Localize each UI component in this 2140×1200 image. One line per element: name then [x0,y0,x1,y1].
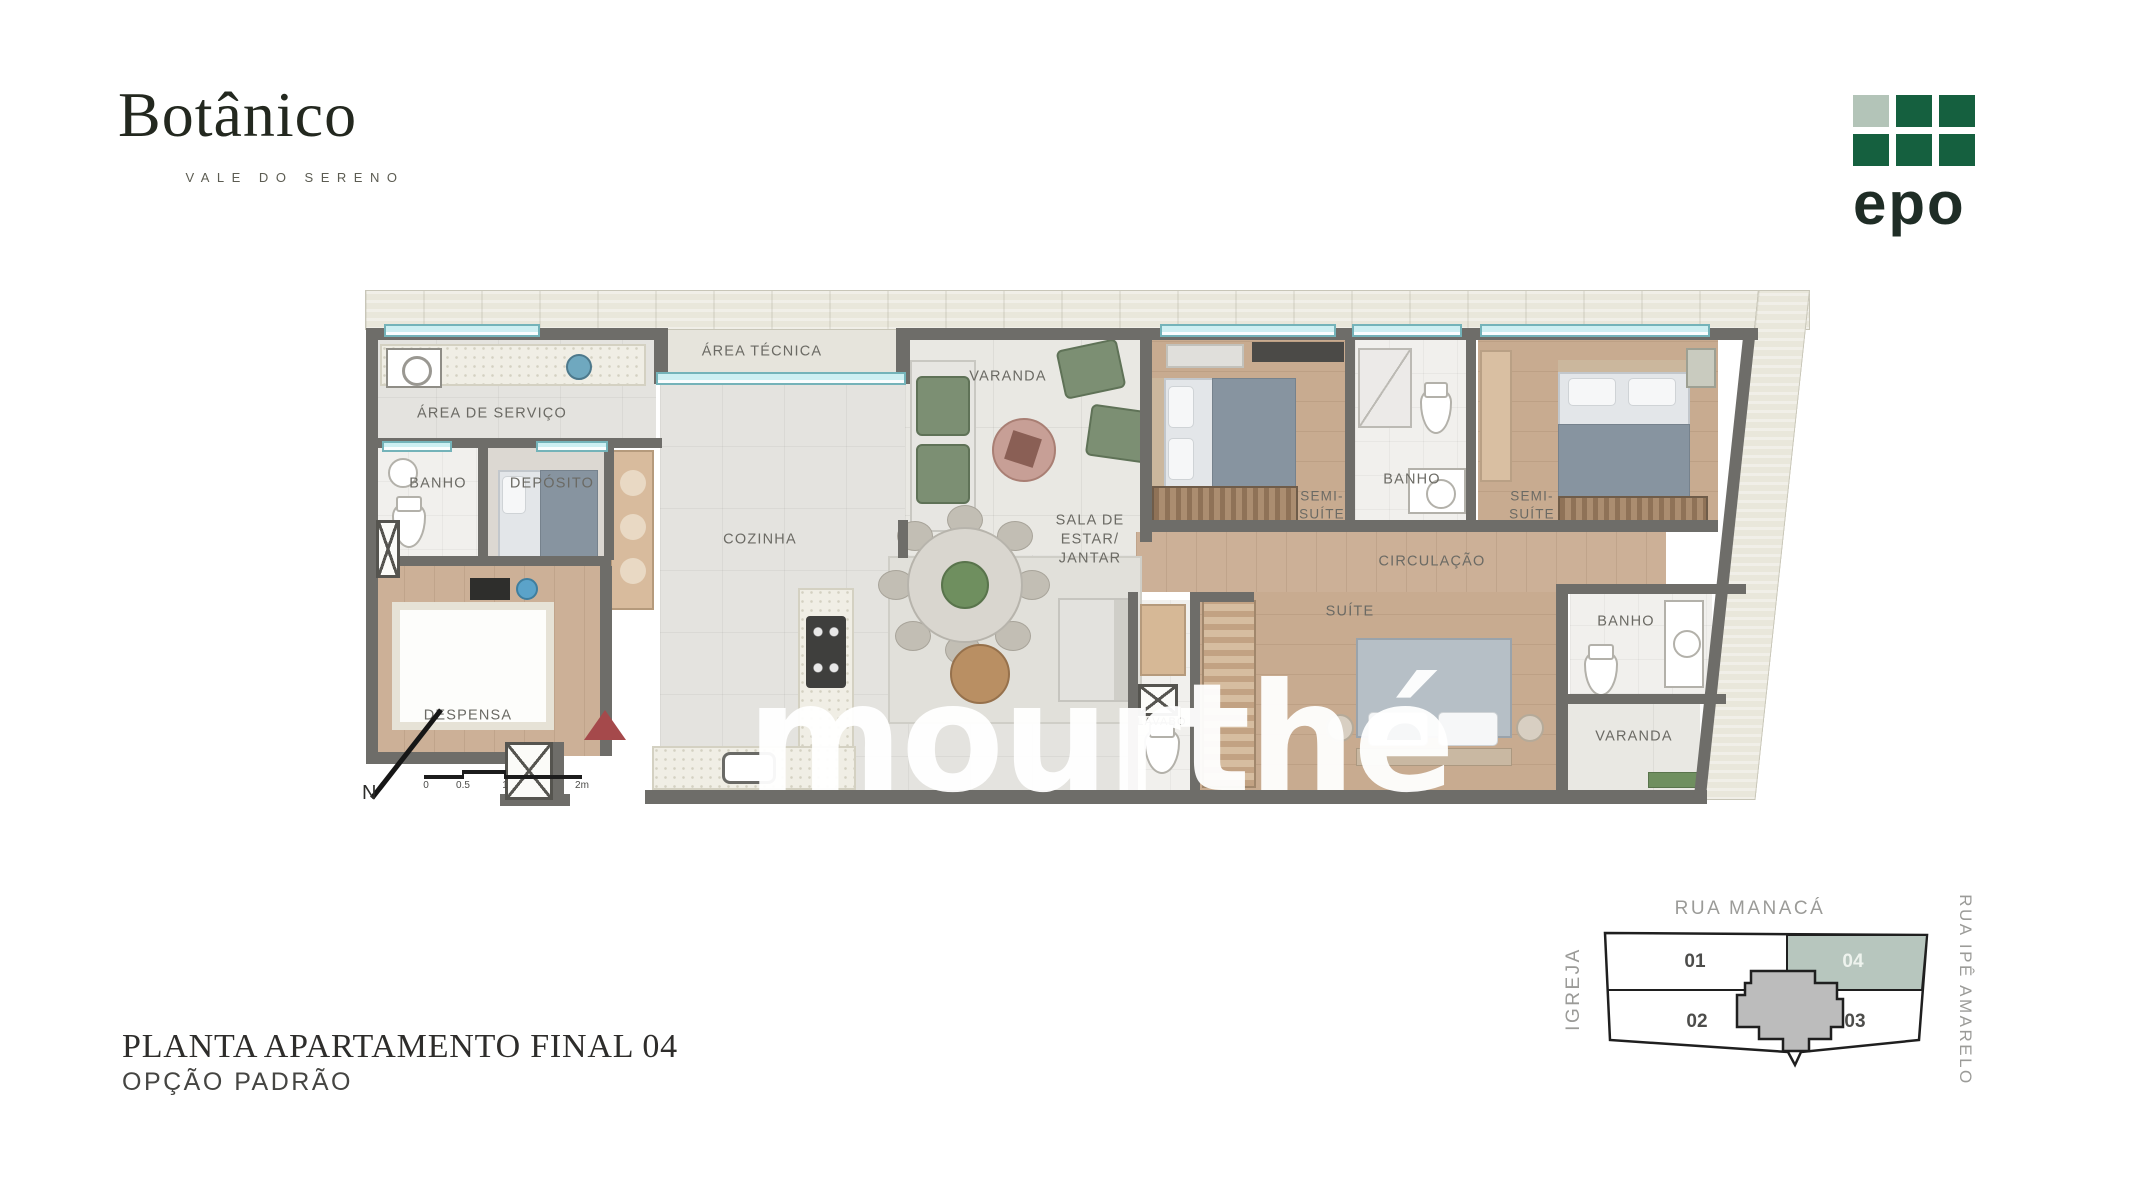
window [1352,324,1462,337]
room-label-banho-semi: BANHO [1383,471,1441,490]
street-label-left: IGREJA [1563,929,1585,1049]
epo-square [1939,95,1975,127]
epo-square [1853,134,1889,166]
laundry-sink [566,354,592,380]
scale-tick-1: 1 [502,780,508,791]
despensa-kettle [516,578,538,600]
elevator-shaft [376,520,400,578]
room-label-banho-servico: BANHO [409,475,467,494]
room-label-cozinha: COZINHA [723,531,797,550]
varanda-sofa-cushion [916,444,970,504]
wall [478,448,488,560]
room-label-sala: SALA DE ESTAR/ JANTAR [1056,512,1125,569]
room-label-circulacao: CIRCULAÇÃO [1378,553,1485,572]
room-label-varanda-suite: VARANDA [1595,728,1672,747]
wall [1556,584,1568,796]
suite-nightstand [1516,714,1544,742]
window [382,441,452,452]
keyplan: 01 04 02 03 [1585,895,1985,1080]
varanda-suite-planter [1648,772,1698,788]
semi1-pillow [1168,438,1194,480]
epo-wordmark: epo [1853,174,1975,234]
despensa-appliance [470,578,510,600]
exterior-stone-wall-right [1703,290,1810,800]
room-label-area-servico: ÁREA DE SERVIÇO [417,405,567,424]
scale-bar: 0 0.5 1 2m [424,770,584,796]
semi2-desk [1480,350,1512,482]
window [1480,324,1710,337]
window [536,441,608,452]
scale-tick-0: 0 [423,780,429,791]
wall [366,556,611,566]
brand-logo: Botânico [118,78,357,152]
scale-tick-2: 2m [575,780,589,791]
room-label-banho-suite: BANHO [1597,613,1655,632]
epo-logo: epo [1853,95,1975,234]
wall [1146,520,1718,532]
north-label: N [362,782,376,805]
watermark-subtext: arquitetos [800,802,1400,846]
brand-subtitle: VALE DO SERENO [130,170,460,185]
semi2-duvet [1558,424,1690,502]
wall [1345,336,1355,526]
wall [1560,694,1726,704]
semi2-pillow [1628,378,1676,406]
window [384,324,540,337]
epo-square-light [1853,95,1889,127]
dining-table-plant [941,561,989,609]
hall-cabinet [610,450,654,610]
page: Botânico VALE DO SERENO epo [0,0,2140,1200]
epo-square [1896,134,1932,166]
semi1-wardrobe [1152,486,1298,524]
semi2-artwork [1686,348,1716,388]
plan-title: PLANTA APARTAMENTO FINAL 04 [122,1028,678,1066]
wall [1198,592,1254,602]
scale-tick-05: 0.5 [456,780,470,791]
banho-suite-vanity [1664,600,1704,688]
semi1-desk [1166,344,1244,368]
wall [604,448,614,560]
semi1-tv-panel [1252,342,1344,362]
semi1-pillow [1168,386,1194,428]
varanda-sofa-cushion [916,376,970,436]
room-label-deposito: DEPÓSITO [510,475,594,494]
keyplan-unit-04: 04 [1842,951,1864,972]
banho-semi-shower [1358,348,1412,428]
semi2-headboard [1558,360,1690,372]
watermark: mourthé [690,652,1510,826]
semi1-headboard [1152,378,1164,490]
wall [1466,336,1476,526]
wall-column [898,520,908,558]
keyplan-unit-02: 02 [1686,1011,1707,1032]
room-label-semi-suite-2: SEMI- SUÍTE [1509,487,1555,522]
entrance-marker [584,710,626,740]
semi1-duvet [1212,378,1296,490]
plan-subtitle: OPÇÃO PADRÃO [122,1068,353,1097]
washing-machine [386,348,442,388]
window [1160,324,1336,337]
semi2-pillow [1568,378,1616,406]
room-label-area-tecnica: ÁREA TÉCNICA [702,343,823,362]
wall [1140,328,1152,542]
epo-square [1939,134,1975,166]
room-label-varanda: VARANDA [969,368,1046,387]
epo-square [1896,95,1932,127]
keyplan-unit-03: 03 [1844,1011,1865,1032]
keyplan-unit-01: 01 [1684,951,1706,972]
room-label-suite: SUÍTE [1326,603,1375,622]
room-label-semi-suite-1: SEMI- SUÍTE [1299,487,1345,522]
window [656,372,906,385]
